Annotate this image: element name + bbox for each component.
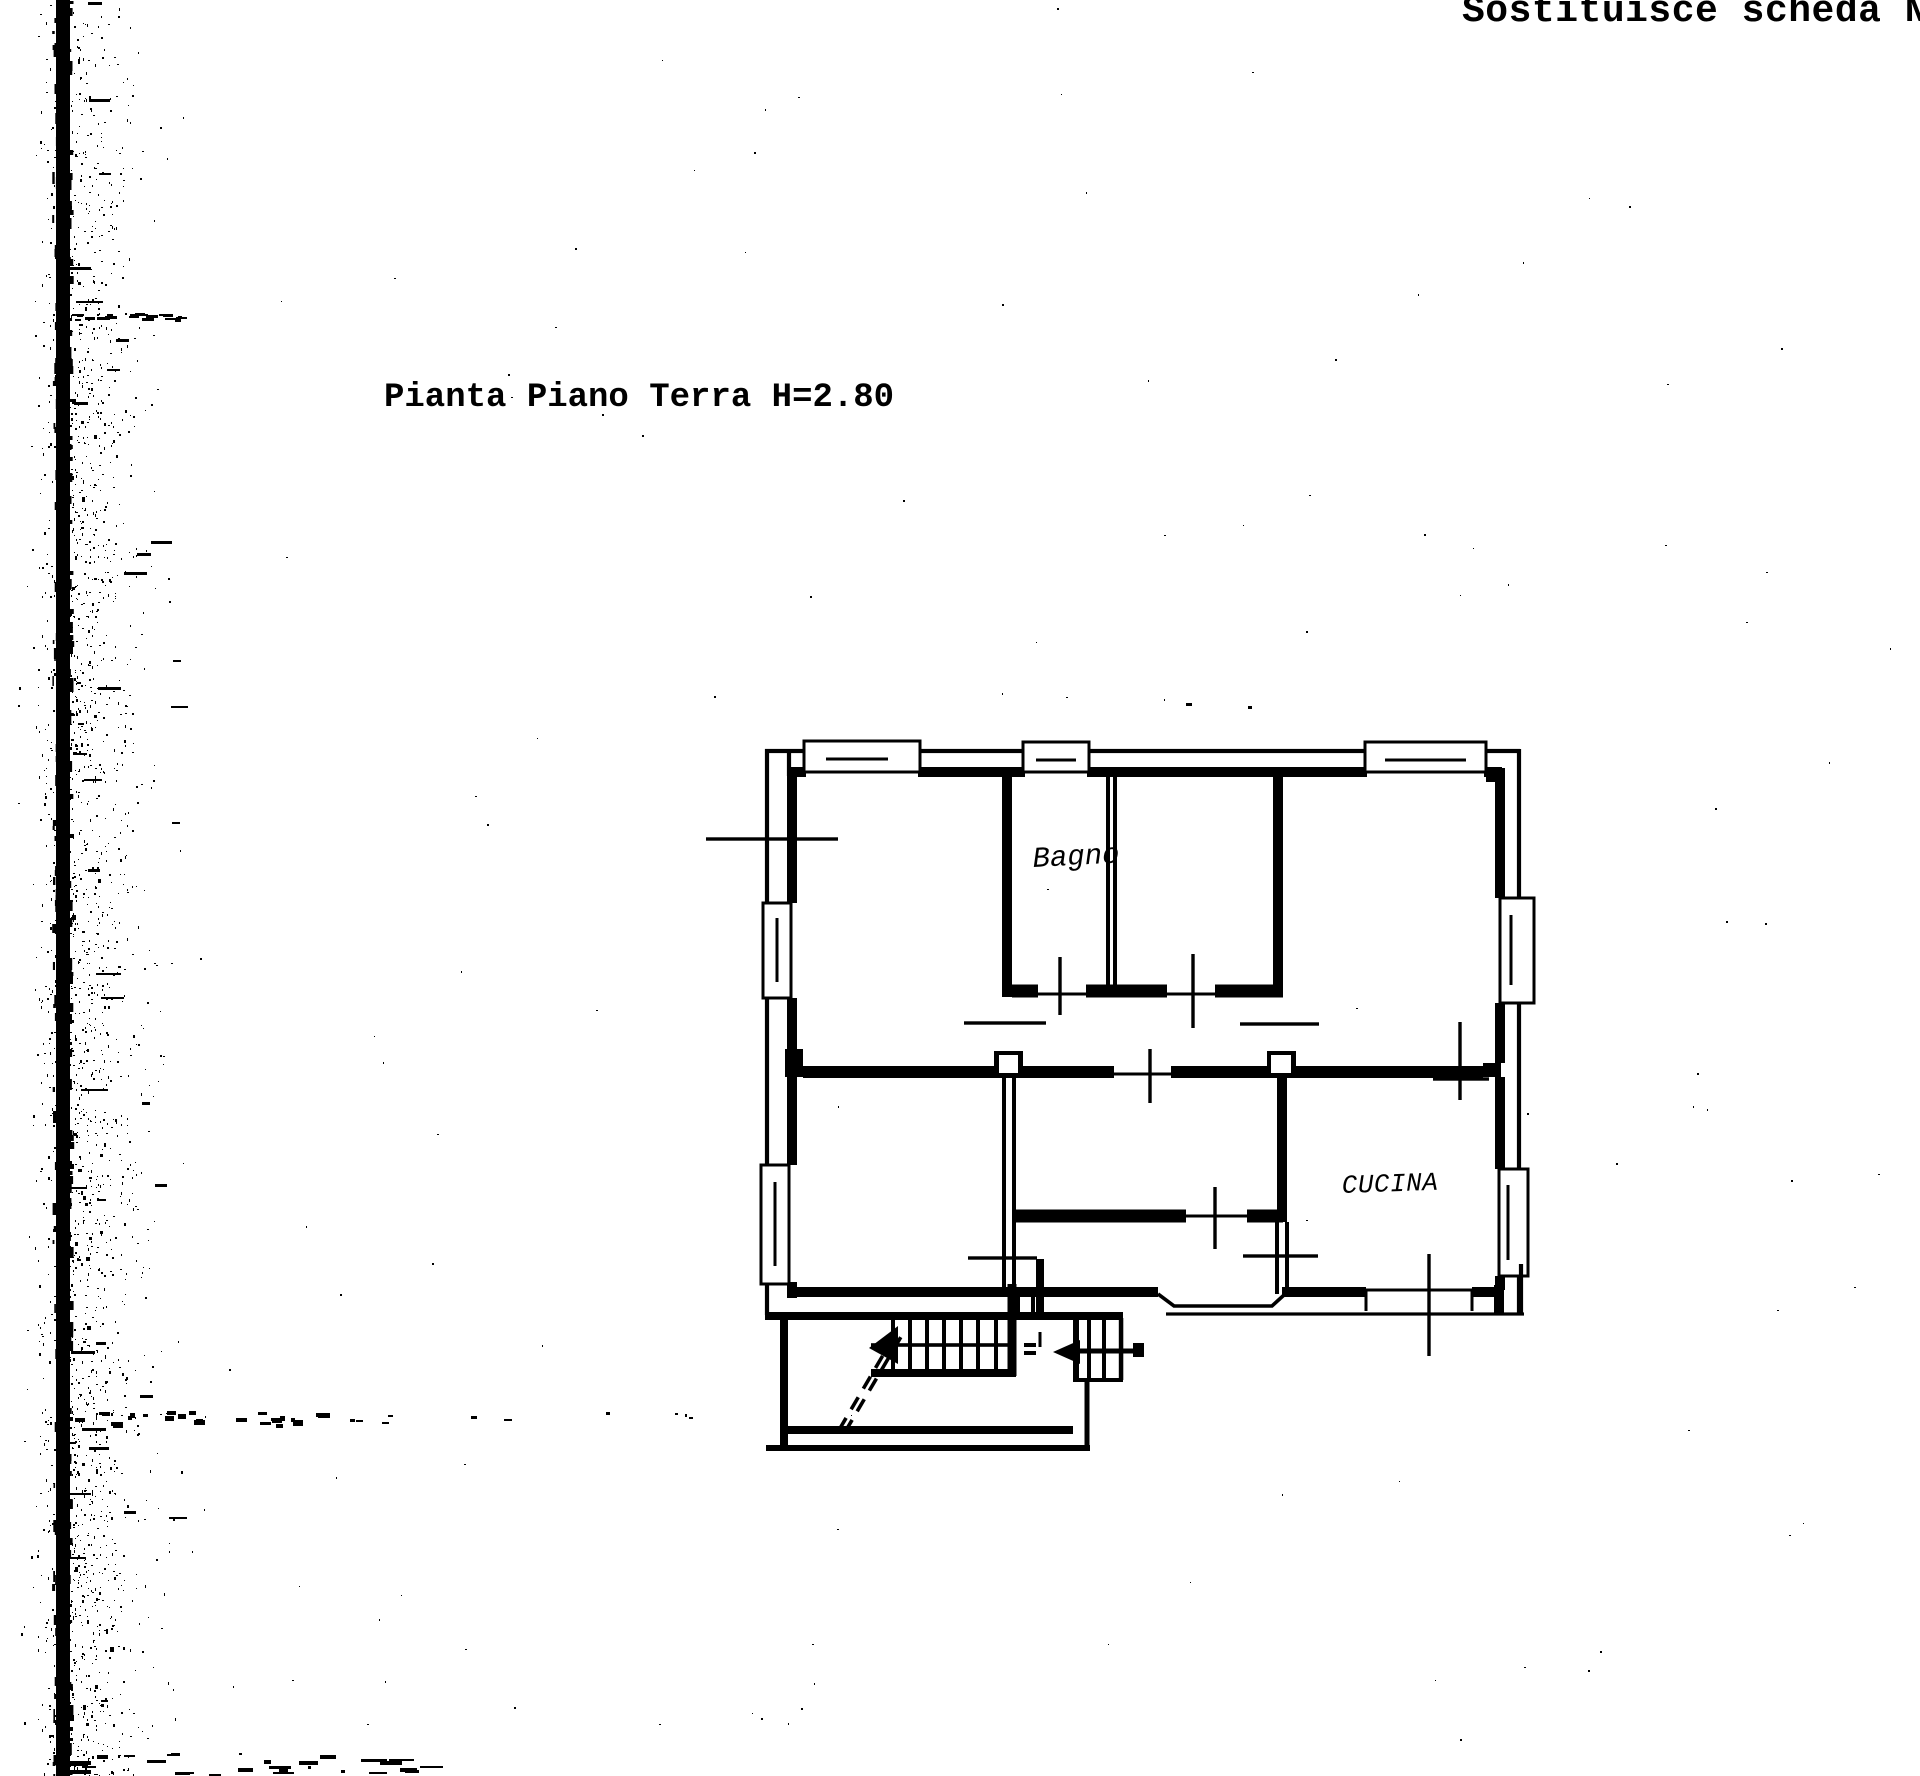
svg-text:Sostituisce scheda N: Sostituisce scheda N xyxy=(1462,0,1920,33)
svg-text:Pianta Piano Terra H=2.80: Pianta Piano Terra H=2.80 xyxy=(384,379,894,417)
svg-text:Bagno: Bagno xyxy=(1032,838,1121,876)
svg-text:CUCINA: CUCINA xyxy=(1341,1168,1439,1201)
